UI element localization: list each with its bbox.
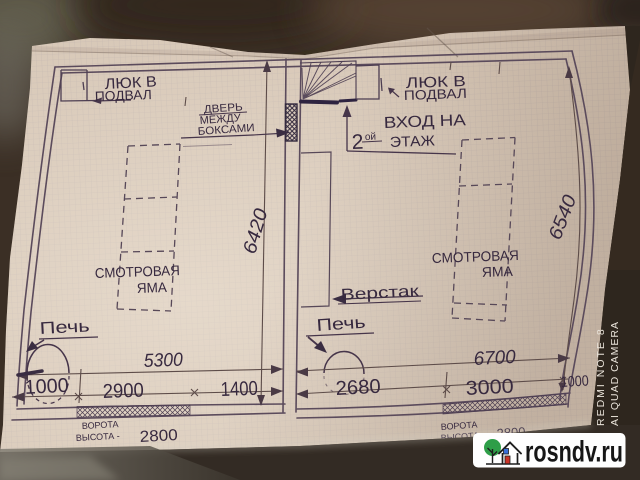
svg-text:2800: 2800 — [139, 427, 178, 446]
svg-text:rosndv.ru: rosndv.ru — [525, 434, 623, 468]
svg-text:Печь: Печь — [316, 313, 366, 335]
svg-text:1000: 1000 — [560, 373, 589, 391]
svg-text:2900: 2900 — [102, 380, 144, 403]
svg-text:REDMI NOTE 8: REDMI NOTE 8 — [595, 327, 607, 426]
svg-text:3000: 3000 — [465, 376, 514, 400]
svg-text:1400: 1400 — [220, 378, 258, 401]
svg-text:5300: 5300 — [143, 350, 183, 372]
svg-text:СМОТРОВАЯ: СМОТРОВАЯ — [95, 262, 181, 281]
svg-text:ПОДВАЛ: ПОДВАЛ — [95, 87, 152, 104]
svg-text:2: 2 — [351, 131, 363, 154]
svg-text:6700: 6700 — [473, 347, 516, 370]
svg-text:AI QUAD CAMERA: AI QUAD CAMERA — [609, 321, 621, 426]
svg-text:ВОРОТА: ВОРОТА — [82, 419, 119, 431]
svg-text:ЯМА: ЯМА — [137, 279, 168, 296]
svg-text:1000: 1000 — [24, 375, 69, 399]
svg-text:ЭТАЖ: ЭТАЖ — [390, 133, 436, 151]
svg-text:Печь: Печь — [39, 316, 90, 338]
svg-text:2680: 2680 — [335, 376, 381, 400]
svg-text:ВХОД НА: ВХОД НА — [384, 112, 467, 132]
svg-text:ПОДВАЛ: ПОДВАЛ — [404, 86, 467, 103]
svg-text:ЯМА: ЯМА — [482, 263, 514, 280]
